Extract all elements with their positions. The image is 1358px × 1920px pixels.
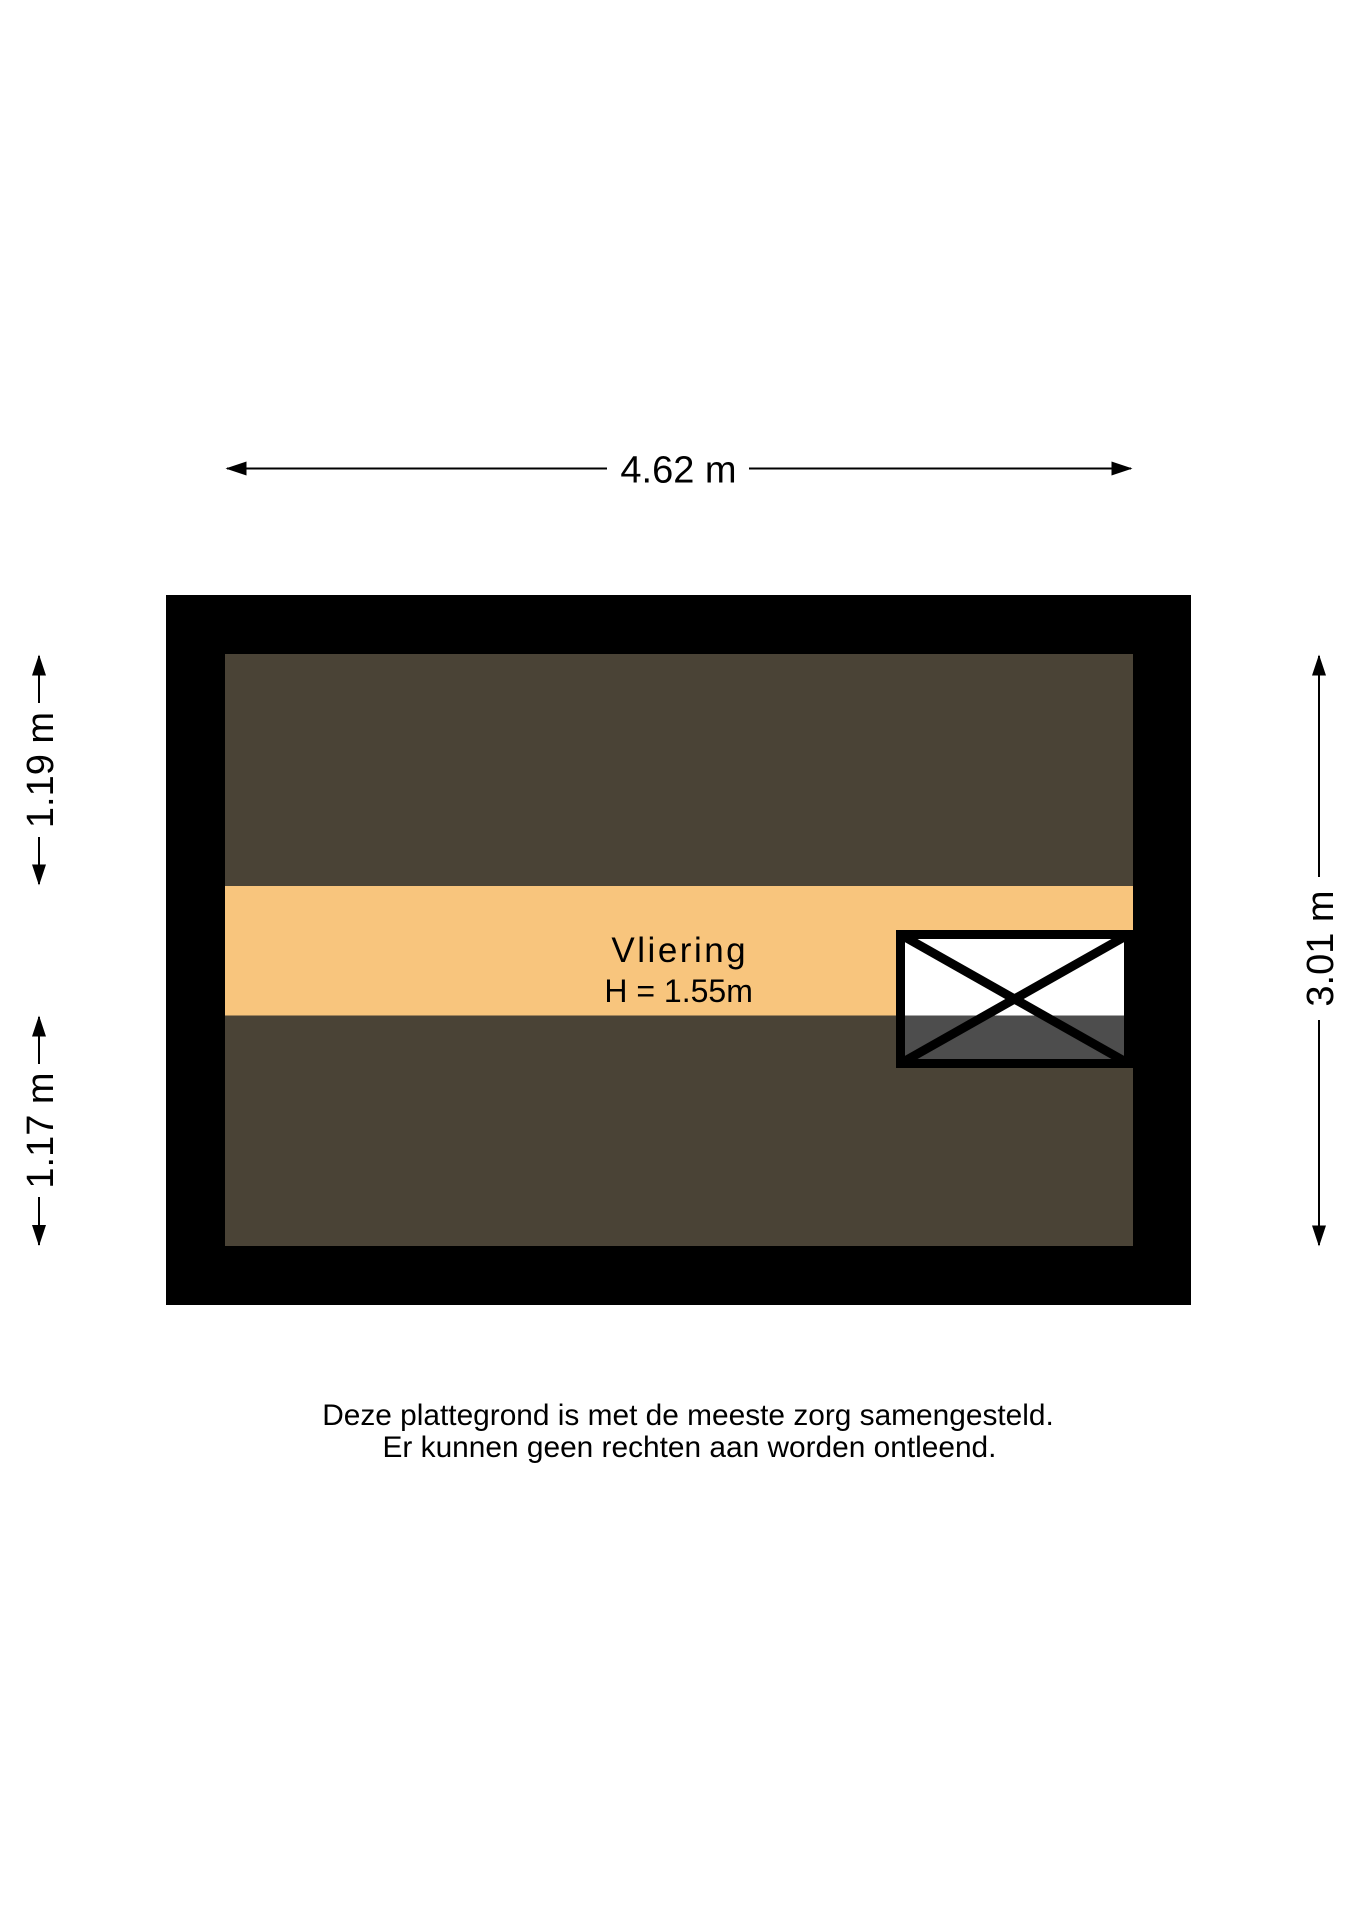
svg-text:Deze plattegrond is met de mee: Deze plattegrond is met de meeste zorg s… bbox=[322, 1399, 1054, 1432]
svg-text:H = 1.55m: H = 1.55m bbox=[604, 973, 753, 1009]
svg-text:1.19 m: 1.19 m bbox=[20, 712, 62, 828]
svg-text:Vliering: Vliering bbox=[611, 931, 748, 970]
svg-text:3.01 m: 3.01 m bbox=[1300, 890, 1342, 1006]
svg-text:Er kunnen geen rechten aan wor: Er kunnen geen rechten aan worden ontlee… bbox=[383, 1431, 997, 1464]
svg-text:1.17 m: 1.17 m bbox=[20, 1072, 62, 1188]
svg-text:4.62 m: 4.62 m bbox=[620, 450, 736, 492]
